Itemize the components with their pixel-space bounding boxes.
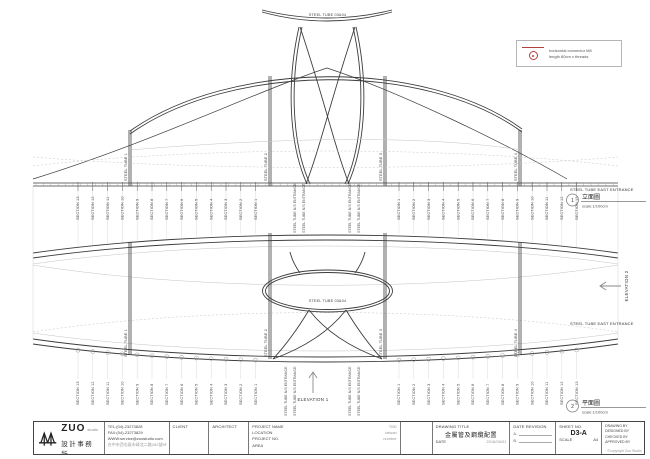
post-labels: STEEL TUBE 1STEEL TUBE 1STEEL TUBE 2STEE…: [124, 153, 518, 357]
plan-lower-c: [33, 333, 618, 351]
logo-zh: 設計事務所: [61, 438, 100, 454]
revision-label: DATE REVISION: [513, 424, 552, 429]
section-label: SECTION 7: [165, 199, 169, 220]
section-label: SECTION 5: [195, 199, 199, 220]
section-label: SECTION 9: [516, 384, 520, 405]
legend-line1: horizontal connector M6: [549, 48, 592, 54]
lens-right-a: [348, 27, 364, 184]
node-circle: [471, 355, 475, 359]
entrance-label: STEEL TUBE N/S ENTRANCE: [348, 183, 352, 233]
section-label: SECTION 8: [501, 199, 505, 220]
section-label: SECTION 1: [397, 199, 401, 220]
section-label: SECTION 3: [224, 199, 228, 220]
view1-title: 立面圖: [582, 193, 600, 201]
section-label: SECTION 10: [121, 381, 125, 405]
copyright-note: ©copyright Zuo Studio: [607, 449, 642, 453]
section-label: SECTION 13: [76, 196, 80, 220]
node-circle: [165, 355, 169, 359]
section-label: SECTION 4: [442, 384, 446, 405]
section-label: SECTION 10: [530, 196, 534, 220]
arch-tube-inner: [130, 80, 522, 134]
section-label: SECTION 10: [530, 381, 534, 405]
east-entrance-label-1: STEEL TUBE EAST ENTRANCE: [570, 187, 634, 192]
elevation1-label: ELEVATION 1: [298, 397, 329, 402]
view1-scale: scale:1/100cm: [582, 204, 608, 209]
node-circle: [486, 354, 490, 358]
logo-cell: ZUOstudio 設計事務所: [34, 422, 104, 454]
section-label: SECTION 10: [121, 196, 125, 220]
zuo-logo-icon: [38, 428, 57, 448]
view2-scale: scale:1/100cm: [582, 410, 608, 415]
paper-size: A4: [593, 437, 598, 443]
sheet-no-label: SHEET NO.: [559, 424, 598, 429]
section-label: SECTION 4: [442, 199, 446, 220]
view1-number: 1: [571, 198, 574, 204]
approved-by-label: APPROVED BY: [605, 440, 641, 445]
plan-center-label: STEEL TUBE 03&04: [309, 299, 346, 303]
section-label: SECTION 1: [254, 199, 258, 220]
section-label: SECTION 7: [165, 384, 169, 405]
lower-section-band: SECTION 13SECTION 12SECTION 11SECTION 10…: [76, 348, 579, 416]
node-circle: [180, 355, 184, 359]
architect-cell: ARCHITECT: [208, 422, 248, 454]
post-label-elevation: STEEL TUBE 4: [514, 153, 518, 181]
post-label-plan: STEEL TUBE 2: [264, 329, 268, 357]
section-label: SECTION 3: [224, 384, 228, 405]
section-label: SECTION 4: [209, 384, 213, 405]
revision-row-b: B.: [513, 438, 517, 443]
project-cell: PROJECT NAMETBD LOCATIONtaiwan PROJECT N…: [248, 422, 399, 454]
section-label: SECTION 11: [545, 382, 549, 405]
plan-center-ellipse-outer: [263, 270, 393, 312]
client-label: CLIENT: [173, 424, 206, 429]
section-label: SECTION 2: [239, 384, 243, 405]
node-circle: [501, 354, 505, 358]
sheet-cell: SHEET NO. D3-A SCALEA4: [555, 422, 601, 454]
section-label: SECTION 12: [91, 381, 95, 405]
section-label: SECTION 12: [560, 381, 564, 405]
post-label-plan: STEEL TUBE 1: [124, 329, 128, 357]
date-label: DATE: [436, 439, 446, 445]
revision-blank-b: [519, 438, 552, 443]
logo-sub: studio: [87, 427, 98, 432]
east-entrance-label-2: STEEL TUBE EAST ENTRANCE: [570, 321, 634, 326]
post-label-plan: STEEL TUBE 3: [379, 329, 383, 357]
architect-label: ARCHITECT: [212, 424, 245, 429]
section-label: SECTION 5: [456, 199, 460, 220]
lens-cross-a: [300, 27, 349, 184]
post-label-plan: STEEL TUBE 4: [514, 329, 518, 357]
section-label: SECTION 6: [180, 384, 184, 405]
connector-circle-symbol: [529, 51, 538, 60]
section-label: SECTION 2: [412, 199, 416, 220]
section-label: SECTION 6: [180, 199, 184, 220]
node-circle: [456, 356, 460, 360]
entrance-label: STEEL TUBE N/S ENTRANCE: [357, 183, 361, 233]
view2-title: 平面圖: [582, 400, 600, 407]
lens-left-a: [291, 27, 307, 184]
entrance-label: STEEL TUBE N/S ENTRANCE: [293, 183, 297, 233]
client-cell: CLIENT: [169, 422, 209, 454]
section-label: SECTION 9: [135, 199, 139, 220]
elevation-posts: [129, 76, 521, 186]
revision-row-a: A.: [513, 431, 517, 436]
drawing-title-value: 金屬管及鋼纜配置: [436, 430, 507, 439]
elevation2-label: ELEVATION 2: [624, 270, 629, 301]
section-label: SECTION 12: [91, 196, 95, 220]
view2-number: 2: [571, 404, 574, 410]
entrance-label: STEEL TUBE N/S ENTRANCE: [348, 366, 352, 416]
section-label: SECTION 8: [501, 384, 505, 405]
elevation1-marker: ELEVATION 1: [298, 372, 329, 402]
logo-name: ZUO: [61, 423, 85, 434]
node-circle: [575, 348, 579, 352]
drawing-title-cell: DRAWING TITLE 金屬管及鋼纜配置 DATE2018/06/01: [432, 422, 510, 454]
legend-symbols: [517, 47, 549, 60]
contact-cell: TEL:(04)-23273828 FAX:(04)-23273829 WWW:…: [104, 422, 169, 454]
plan-upper-a: [33, 235, 618, 253]
section-label: SECTION 2: [412, 384, 416, 405]
spare-cell: [400, 422, 432, 454]
section-label: SECTION 11: [106, 197, 110, 220]
revision-blank-a: [519, 431, 552, 436]
elevation-reference-curves: [33, 140, 618, 168]
section-label: SECTION 13: [76, 381, 80, 405]
date-value: 2018/06/01: [486, 439, 506, 445]
tube-top-label: STEEL TUBE 03&04: [309, 13, 346, 17]
revision-cell: DATE REVISION A. B.: [509, 422, 555, 454]
section-label: SECTION 6: [471, 199, 475, 220]
section-label: SECTION 5: [456, 384, 460, 405]
drawing-sheet: STEEL TUBE 03&04: [0, 0, 650, 459]
project-no-value: number: [383, 436, 397, 442]
signoff-cell: DRAWING BY DESIGNED BY CHECKED BY APPROV…: [601, 422, 644, 454]
connector-dot: [532, 55, 534, 57]
elevation-view: STEEL TUBE 03&04: [33, 10, 618, 186]
section-label: SECTION 9: [135, 384, 139, 405]
logo-text: ZUOstudio 設計事務所: [61, 422, 100, 454]
section-label: SECTION 1: [254, 384, 258, 405]
plan-center-ellipse-inner: [266, 273, 390, 310]
entrance-label: STEEL TUBE N/S ENTRANCE: [357, 366, 361, 416]
entrance-label: STEEL TUBE N/S ENTRANCE: [293, 366, 297, 416]
section-label: SECTION 11: [106, 382, 110, 405]
legend-text: horizontal connector M6 length 80cm x th…: [549, 48, 592, 60]
drawing-title-label: DRAWING TITLE: [436, 424, 507, 429]
entrance-label: STEEL TUBE N/S ENTRANCE: [284, 366, 288, 416]
section-label: SECTION 2: [239, 199, 243, 220]
legend-line2: length 80cm x threads: [549, 54, 592, 60]
section-label: SECTION 6: [471, 384, 475, 405]
lens-cross-b: [306, 27, 355, 184]
connector-line-symbol: [522, 47, 544, 48]
section-label: SECTION 8: [150, 199, 154, 220]
legend-box: horizontal connector M6 length 80cm x th…: [516, 40, 622, 67]
title-block: ZUOstudio 設計事務所 TEL:(04)-23273828 FAX:(0…: [33, 421, 645, 455]
section-label: SECTION 1: [397, 384, 401, 405]
post-label-elevation: STEEL TUBE 1: [124, 153, 128, 181]
section-label: SECTION 7: [486, 199, 490, 220]
section-label: SECTION 11: [545, 197, 549, 220]
entrance-label: STEEL TUBE N/S ENTRANCE: [302, 183, 306, 233]
sheet-no-value: D3-A: [559, 430, 598, 437]
elevation2-marker: ELEVATION 2: [600, 270, 629, 301]
section-label: SECTION 7: [486, 384, 490, 405]
plan-posts: [129, 233, 521, 359]
contact-address: 台中市西屯區市政北二路282號5F: [108, 442, 166, 448]
area-label: AREA: [252, 443, 263, 449]
section-label: SECTION 4: [209, 199, 213, 220]
plan-upper-c: [33, 246, 618, 264]
section-label: SECTION 5: [195, 384, 199, 405]
section-label: SECTION 9: [516, 199, 520, 220]
section-label: SECTION 3: [427, 199, 431, 220]
post-label-elevation: STEEL TUBE 3: [379, 153, 383, 181]
post-label-elevation: STEEL TUBE 2: [264, 153, 268, 181]
section-label: SECTION 8: [150, 384, 154, 405]
scale-label: SCALE: [559, 437, 572, 443]
upper-section-band: SECTION 13SECTION 12SECTION 11SECTION 10…: [36, 182, 613, 247]
node-circle: [194, 356, 198, 360]
section-label: SECTION 3: [427, 384, 431, 405]
node-circle: [150, 354, 154, 358]
section-label: SECTION 12: [560, 196, 564, 220]
